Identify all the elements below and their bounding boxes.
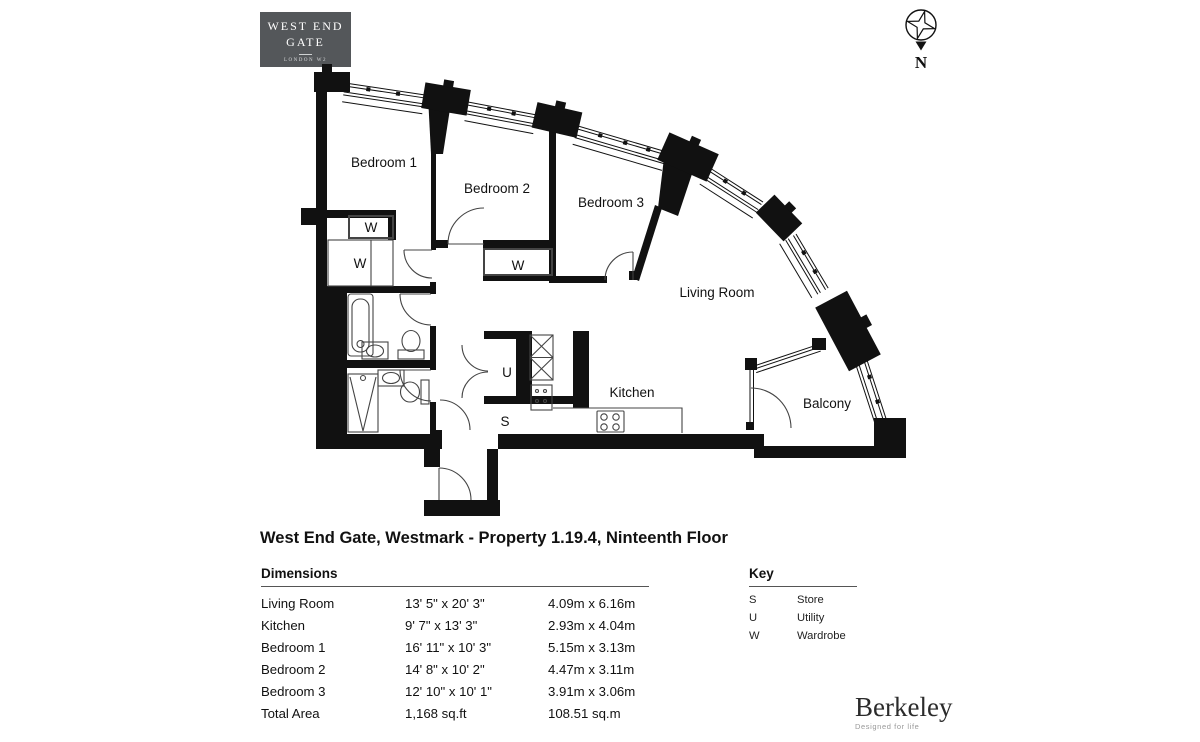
facade-glazing (342, 83, 887, 428)
table-row: Bedroom 1 16' 11" x 10' 3" 5.15m x 3.13m (261, 636, 649, 658)
imperial-size: 9' 7" x 13' 3" (405, 618, 548, 633)
store-label: S (500, 414, 509, 429)
room-name: Kitchen (261, 618, 405, 633)
table-row: Kitchen 9' 7" x 13' 3" 2.93m x 4.04m (261, 614, 649, 636)
dimensions-heading: Dimensions (261, 566, 649, 587)
table-row: Living Room 13' 5" x 20' 3" 4.09m x 6.16… (261, 592, 649, 614)
room-label-bedroom3: Bedroom 3 (578, 195, 644, 210)
room-label-living-room: Living Room (679, 285, 754, 300)
room-name: Total Area (261, 706, 405, 721)
room-label-bedroom2: Bedroom 2 (464, 181, 530, 196)
dimensions-rows: Living Room 13' 5" x 20' 3" 4.09m x 6.16… (261, 592, 649, 724)
berkeley-brand-name: Berkeley (855, 694, 952, 721)
room-name: Bedroom 3 (261, 684, 405, 699)
metric-size: 5.15m x 3.13m (548, 640, 635, 655)
room-name: Living Room (261, 596, 405, 611)
key-abbr: U (749, 612, 797, 624)
imperial-size: 12' 10" x 10' 1" (405, 684, 548, 699)
table-row-total-area: Total Area 1,168 sq.ft 108.51 sq.m (261, 702, 649, 724)
key-label: Store (797, 594, 824, 606)
key-heading: Key (749, 566, 857, 587)
wardrobe-label-1: W (365, 220, 378, 235)
utility-label: U (502, 365, 512, 380)
key-row: S Store (749, 591, 857, 609)
metric-size: 4.47m x 3.11m (548, 662, 634, 677)
key-abbr: S (749, 594, 797, 606)
metric-size: 3.91m x 3.06m (548, 684, 635, 699)
room-label-balcony: Balcony (803, 396, 851, 411)
imperial-size: 14' 8" x 10' 2" (405, 662, 548, 677)
table-row: Bedroom 3 12' 10" x 10' 1" 3.91m x 3.06m (261, 680, 649, 702)
room-name: Bedroom 1 (261, 640, 405, 655)
key-rows: S Store U Utility W Wardrobe (749, 591, 857, 645)
metric-size: 2.93m x 4.04m (548, 618, 635, 633)
imperial-size: 16' 11" x 10' 3" (405, 640, 548, 655)
room-name: Bedroom 2 (261, 662, 405, 677)
key-section: Key S Store U Utility W Wardrobe (749, 566, 857, 645)
page-title: West End Gate, Westmark - Property 1.19.… (260, 529, 728, 548)
imperial-size: 13' 5" x 20' 3" (405, 596, 548, 611)
table-row: Bedroom 2 14' 8" x 10' 2" 4.47m x 3.11m (261, 658, 649, 680)
berkeley-logo: Berkeley Designed for life (855, 694, 952, 731)
room-label-bedroom1: Bedroom 1 (351, 155, 417, 170)
imperial-size: 1,168 sq.ft (405, 706, 548, 721)
key-label: Wardrobe (797, 630, 846, 642)
metric-size: 108.51 sq.m (548, 706, 621, 721)
key-abbr: W (749, 630, 797, 642)
wardrobe-label-3: W (512, 258, 525, 273)
key-row: U Utility (749, 609, 857, 627)
key-row: W Wardrobe (749, 627, 857, 645)
wardrobe-label-2: W (354, 256, 367, 271)
berkeley-tagline: Designed for life (855, 722, 952, 731)
room-label-kitchen: Kitchen (609, 385, 654, 400)
dimensions-section: Dimensions Living Room 13' 5" x 20' 3" 4… (261, 566, 649, 724)
metric-size: 4.09m x 6.16m (548, 596, 635, 611)
fixtures-and-doors (328, 208, 791, 500)
key-label: Utility (797, 612, 824, 624)
